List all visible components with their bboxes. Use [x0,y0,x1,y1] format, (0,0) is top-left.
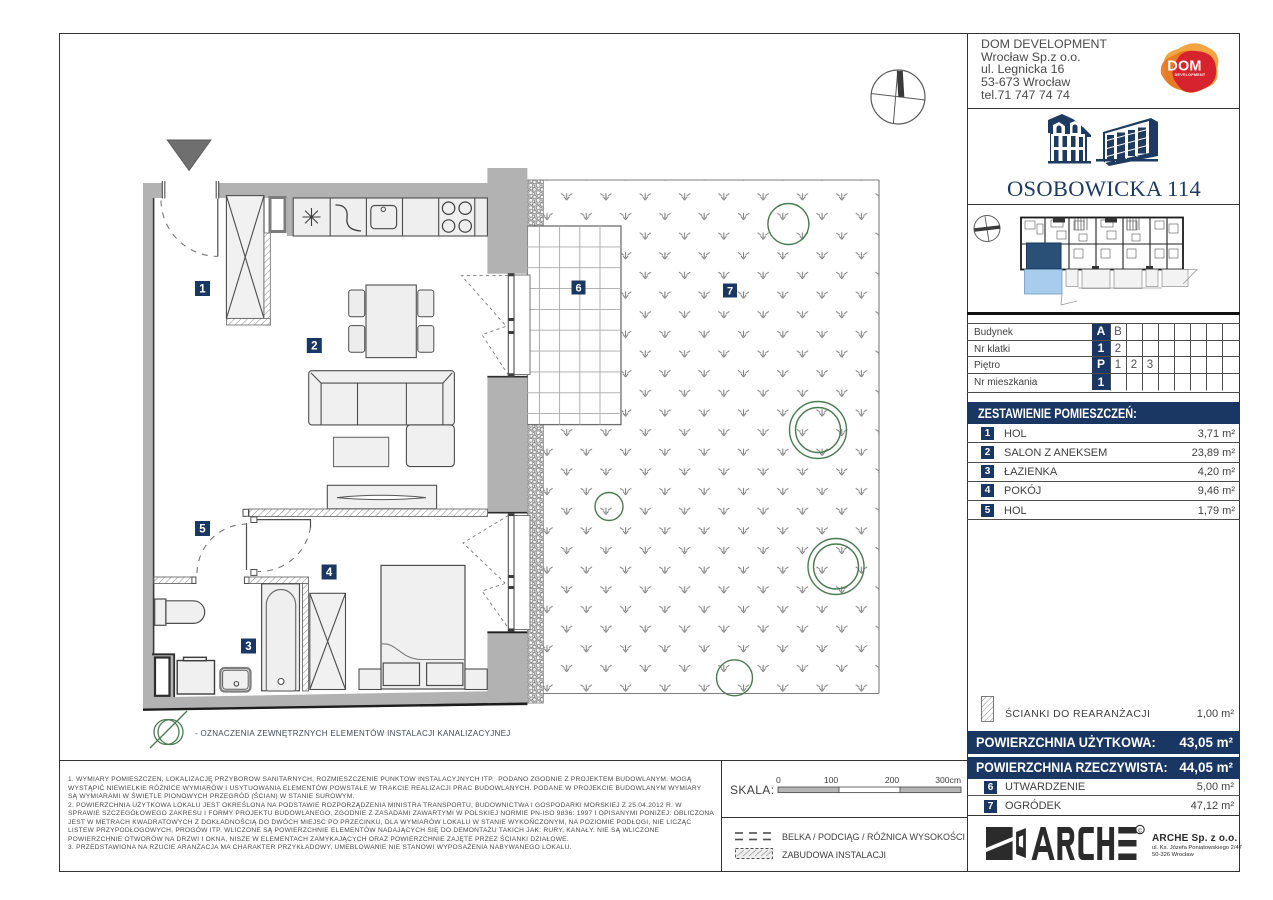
svg-text:100: 100 [824,775,839,785]
svg-text:200: 200 [885,775,900,785]
svg-text:DEVELOPMENT: DEVELOPMENT [1175,73,1206,77]
svg-text:300cm: 300cm [935,775,961,785]
svg-text:c: c [1138,825,1142,834]
svg-text:0: 0 [776,775,781,785]
